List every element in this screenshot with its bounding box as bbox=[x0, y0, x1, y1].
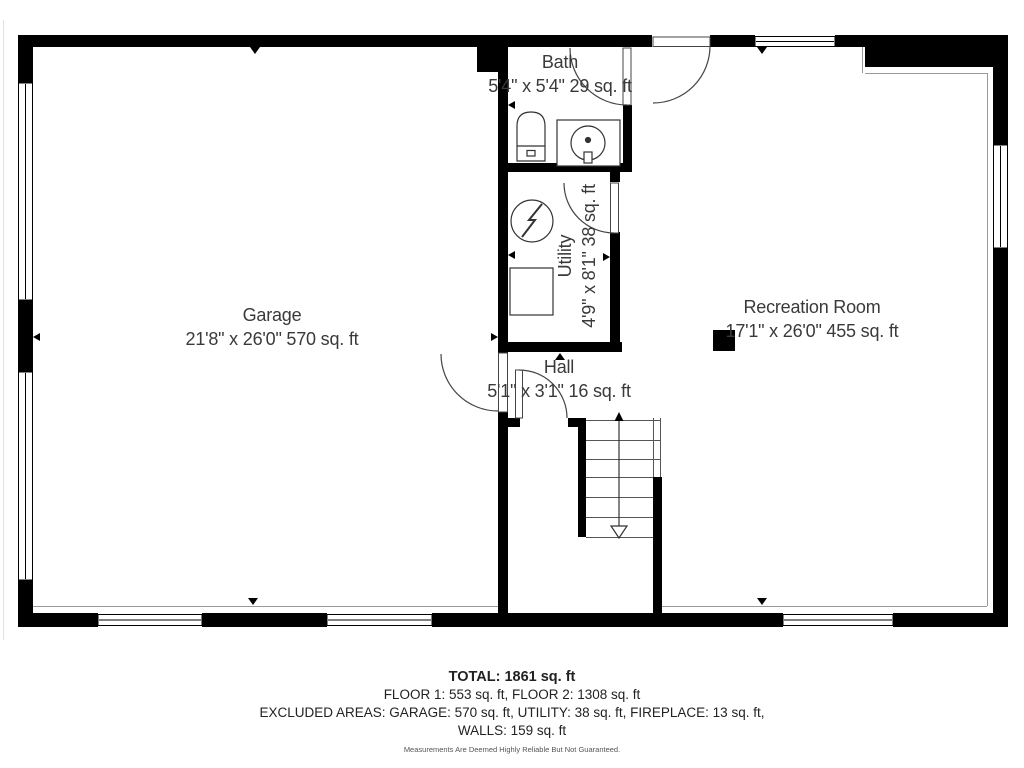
wall-segment bbox=[18, 35, 652, 47]
marker-right-icon bbox=[603, 253, 610, 261]
water-heater-icon bbox=[511, 200, 553, 242]
wall-segment bbox=[623, 105, 632, 172]
room-dimensions: 21'8" x 26'0" 570 sq. ft bbox=[152, 327, 392, 351]
marker-down-icon bbox=[757, 598, 767, 605]
wall-segment bbox=[993, 35, 1008, 145]
marker-down-icon bbox=[248, 598, 258, 605]
disclaimer: Measurements Are Deemed Highly Reliable … bbox=[0, 745, 1024, 754]
room-name: Bath bbox=[460, 50, 660, 74]
recreation-room-label: Recreation Room 17'1" x 26'0" 455 sq. ft bbox=[692, 295, 932, 343]
marker-down-icon bbox=[250, 47, 260, 54]
stair-up-arrow-icon bbox=[615, 412, 624, 421]
area-summary: TOTAL: 1861 sq. ft FLOOR 1: 553 sq. ft, … bbox=[0, 668, 1024, 754]
wall-segment bbox=[610, 232, 620, 342]
marker-left-icon bbox=[508, 251, 515, 259]
recreation-door-leaf bbox=[653, 37, 710, 47]
marker-left-icon bbox=[508, 101, 515, 109]
marker-right-icon bbox=[491, 333, 498, 341]
staircase bbox=[586, 412, 661, 538]
wall-segment bbox=[710, 35, 755, 47]
wall-segment bbox=[432, 613, 783, 627]
total-area: TOTAL: 1861 sq. ft bbox=[0, 668, 1024, 686]
wall-segment bbox=[993, 248, 1008, 627]
stair-down-arrow-icon bbox=[611, 526, 627, 538]
wall-segment bbox=[610, 172, 620, 182]
marker-down-icon bbox=[757, 47, 767, 54]
fireplace-wall bbox=[865, 35, 1008, 67]
toilet-icon bbox=[517, 112, 545, 161]
room-dimensions: 4'9" x 8'1" 38 sq. ft bbox=[577, 146, 601, 366]
floor-areas: FLOOR 1: 553 sq. ft, FLOOR 2: 1308 sq. f… bbox=[0, 686, 1024, 704]
wall-segment bbox=[508, 418, 520, 427]
walls-area: WALLS: 159 sq. ft bbox=[0, 722, 1024, 740]
room-name: Hall bbox=[459, 355, 659, 379]
marker-left-icon bbox=[33, 333, 40, 341]
floor-plan-page: Garage 21'8" x 26'0" 570 sq. ft Bath 5'4… bbox=[0, 0, 1024, 768]
excluded-areas: EXCLUDED AREAS: GARAGE: 570 sq. ft, UTIL… bbox=[0, 704, 1024, 722]
room-dimensions: 17'1" x 26'0" 455 sq. ft bbox=[692, 319, 932, 343]
room-name: Recreation Room bbox=[692, 295, 932, 319]
wall-segment bbox=[568, 418, 578, 427]
wall-segment bbox=[893, 613, 1008, 627]
wall-segment bbox=[202, 613, 327, 627]
utility-door-leaf bbox=[611, 183, 619, 233]
bath-label: Bath 5'4" x 5'4" 29 sq. ft bbox=[460, 50, 660, 98]
appliance-icon bbox=[510, 268, 553, 315]
room-name: Garage bbox=[152, 303, 392, 327]
hall-label: Hall 5'1" x 3'1" 16 sq. ft bbox=[459, 355, 659, 403]
room-dimensions: 5'1" x 3'1" 16 sq. ft bbox=[459, 379, 659, 403]
wall-segment bbox=[18, 613, 98, 627]
wall-segment bbox=[578, 418, 586, 537]
wall-segment bbox=[18, 35, 33, 83]
door-swing-arc bbox=[653, 46, 710, 103]
garage-label: Garage 21'8" x 26'0" 570 sq. ft bbox=[152, 303, 392, 351]
wall-segment bbox=[18, 300, 33, 372]
utility-label: Utility 4'9" x 8'1" 38 sq. ft bbox=[553, 146, 601, 366]
wall-segment bbox=[653, 477, 662, 627]
room-dimensions: 5'4" x 5'4" 29 sq. ft bbox=[460, 74, 660, 98]
room-name: Utility bbox=[553, 146, 577, 366]
wall-segment bbox=[498, 412, 508, 613]
